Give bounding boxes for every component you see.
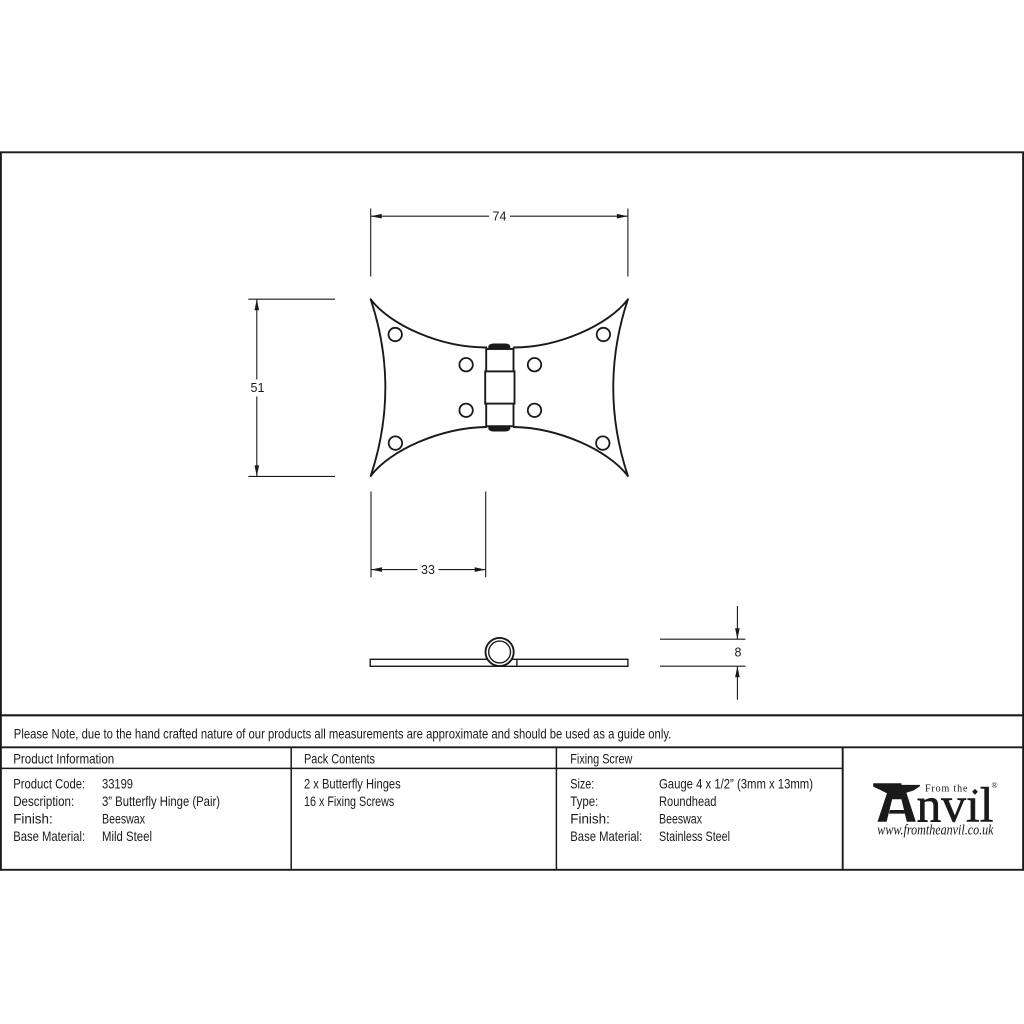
svg-text:51: 51 [251,381,265,395]
svg-text:®: ® [992,781,998,790]
svg-text:Stainless Steel: Stainless Steel [659,828,730,844]
svg-text:Please Note, due to the hand c: Please Note, due to the hand crafted nat… [14,726,672,742]
svg-text:3” Butterfly Hinge (Pair): 3” Butterfly Hinge (Pair) [102,793,220,809]
svg-text:33: 33 [421,563,435,577]
svg-text:Beeswax: Beeswax [659,811,702,827]
svg-text:www.fromtheanvil.co.uk: www.fromtheanvil.co.uk [877,823,993,839]
svg-text:33199: 33199 [102,776,133,792]
svg-text:Fixing Screw: Fixing Screw [570,750,633,766]
svg-text:16 x Fixing Screws: 16 x Fixing Screws [304,793,394,809]
svg-text:Roundhead: Roundhead [659,793,717,809]
svg-text:Type:: Type: [570,793,598,809]
svg-text:Product Information: Product Information [13,750,114,766]
svg-text:8: 8 [735,646,742,660]
svg-text:Base Material:: Base Material: [13,828,85,844]
svg-text:Gauge 4 x 1/2” (3mm x 13mm): Gauge 4 x 1/2” (3mm x 13mm) [659,776,813,792]
svg-text:Mild Steel: Mild Steel [102,828,152,844]
svg-text:Product Code:: Product Code: [13,776,85,792]
svg-text:Finish:: Finish: [570,811,610,827]
svg-text:Beeswax: Beeswax [102,811,145,827]
svg-text:2 x Butterfly Hinges: 2 x Butterfly Hinges [304,776,401,792]
svg-text:Finish:: Finish: [13,811,53,827]
svg-text:Pack Contents: Pack Contents [304,750,375,766]
svg-text:Size:: Size: [570,776,594,792]
svg-text:74: 74 [493,210,507,224]
svg-text:Base Material:: Base Material: [570,828,642,844]
svg-text:Description:: Description: [13,793,74,809]
